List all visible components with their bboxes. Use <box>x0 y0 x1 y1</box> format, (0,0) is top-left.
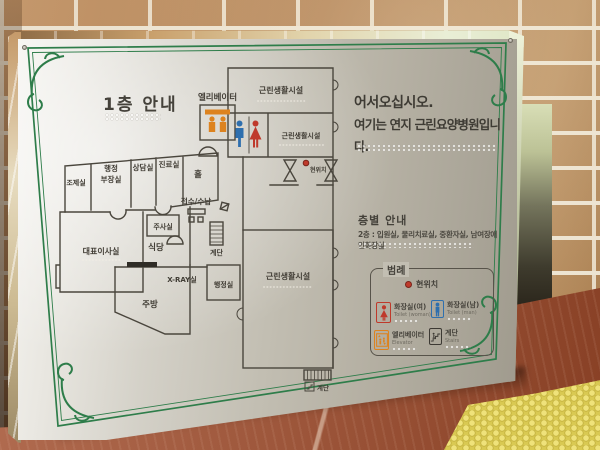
legend-label: 화장실(여) <box>394 302 431 312</box>
room-label-admin-director-1: 행정 <box>104 163 118 173</box>
woman-icon <box>250 121 262 148</box>
legend-sublabel: Elevator <box>392 340 424 346</box>
man-icon <box>431 300 444 318</box>
welcome-line1: 어서오십시오. <box>354 92 510 114</box>
legend-sublabel: Stairs <box>445 338 471 344</box>
legend-item-stairs: 계단 Stairs <box>429 328 471 350</box>
braille-dots <box>83 101 323 287</box>
braille-strip <box>447 317 473 322</box>
woman-icon <box>376 302 391 323</box>
photo-scene: 1층 안내 어서오십시오. 여기는 연지 근린요양병원입니다. <box>0 0 600 450</box>
door-tab <box>237 80 338 348</box>
room-label-stairs-mid: 계단 <box>210 248 223 257</box>
room-label-counseling: 상담실 <box>133 162 154 172</box>
braille-strip <box>392 347 418 352</box>
screw <box>508 38 513 43</box>
room-label-reception: 접수/수납 <box>181 196 211 206</box>
room-label-dining: 식당 <box>148 242 164 253</box>
floor-plan: 엘리베이터 근린생활시설 근린생활시설 현위치 조제실 행정 부장실 상담실 진… <box>55 60 365 400</box>
elevator-icon <box>205 110 230 133</box>
elevator-icon <box>374 330 389 350</box>
room-label-admin-director-2: 부장실 <box>101 174 122 184</box>
legend-title: 범례 <box>383 262 409 277</box>
room-label-elevator: 엘리베이터 <box>198 92 237 103</box>
directory-sign: 1층 안내 어서오십시오. 여기는 연지 근린요양병원입니다. <box>8 26 524 446</box>
legend-item-toilet-man: 화장실(남) Toilet (man) <box>431 300 479 322</box>
legend-current-location-label: 현위치 <box>416 279 438 290</box>
room-label-admin-office: 행정실 <box>214 280 233 289</box>
stairs-hatch <box>308 370 329 380</box>
stairs-icon <box>429 328 442 345</box>
room-label-clinic: 진료실 <box>159 159 180 169</box>
map-current-location-label: 현위치 <box>310 166 327 174</box>
door-arc <box>110 206 171 219</box>
room-label-hall: 홀 <box>194 169 202 180</box>
thick-door-bar <box>127 262 157 267</box>
legend-label: 계단 <box>445 328 471 338</box>
room-label-facility-bottom: 근린생활시설 <box>266 271 310 281</box>
room-label-stairs-bottom: 계단 <box>317 383 329 392</box>
screw <box>22 45 27 50</box>
room-label-dispensary: 조제실 <box>66 178 85 187</box>
room-label-xray: X-RAY실 <box>167 275 196 284</box>
legend-item-toilet-woman: 화장실(여) Toilet (woman) <box>376 302 431 324</box>
room-label-kitchen: 주방 <box>142 299 158 310</box>
current-location-dot <box>303 160 309 166</box>
legend-label: 화장실(남) <box>447 300 479 310</box>
room-label-injection: 주사실 <box>153 222 172 231</box>
current-location-dot <box>405 281 412 288</box>
stairs-icon <box>307 385 313 389</box>
plan-walls <box>56 68 338 391</box>
floor-guide-heading: 층별 안내 <box>358 212 407 228</box>
room-label-facility-top: 근린생활시설 <box>259 85 303 95</box>
braille-strip <box>445 345 471 350</box>
braille-strip <box>394 319 420 324</box>
braille-strip <box>358 242 474 248</box>
legend-item-elevator: 엘리베이터 Elevator <box>374 330 424 352</box>
stairs-hatch <box>210 226 223 242</box>
braille-strip <box>357 144 497 151</box>
legend-current-location: 현위치 <box>405 279 438 290</box>
flag-symbol <box>220 202 228 210</box>
legend-box: 범례 현위치 화장실(여) Toilet (woman) <box>370 268 494 356</box>
room-label-ceo-office: 대표이사실 <box>83 246 120 256</box>
legend-sublabel: Toilet (woman) <box>394 312 431 318</box>
door-arc <box>167 236 183 244</box>
legend-sublabel: Toilet (man) <box>447 310 479 316</box>
room-label-facility-mid: 근린생활시설 <box>282 131 321 140</box>
welcome-line2: 여기는 연지 근린요양병원입니다. <box>354 114 510 158</box>
man-icon <box>235 121 243 148</box>
legend-label: 엘리베이터 <box>392 330 424 340</box>
